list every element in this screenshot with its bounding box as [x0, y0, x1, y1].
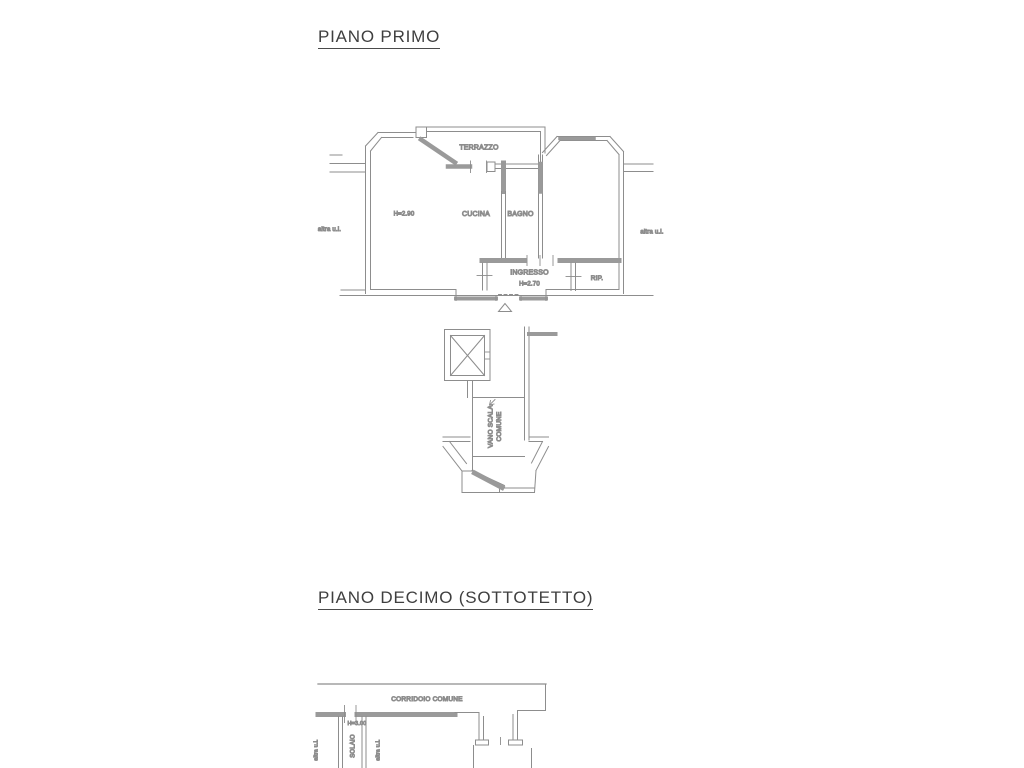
plan1-ingresso-left-wall — [477, 263, 492, 290]
plan1-kitchen-top-wall — [448, 161, 541, 192]
stair-flight — [475, 473, 503, 488]
label-ingresso: INGRESSO — [510, 270, 549, 277]
entry-triangle-icon — [499, 304, 512, 312]
label-altra-ui-left: altra u.i. — [318, 227, 341, 233]
plan1-cucina-bagno-wall — [502, 192, 506, 259]
stair-left-flare — [443, 437, 505, 493]
plan1-diagonal-wall — [416, 127, 455, 163]
label-vano-scala-comune: COMUNE — [496, 411, 503, 442]
plan1-rip-wall — [566, 263, 581, 291]
plan2-attic-floor: CORRIDOIO COMUNE H=3.00 SOLAIO altra u.i… — [314, 684, 547, 768]
plan1-bagno-right-wall — [539, 155, 543, 258]
label-plan2-altra-ui-right: altra u.i. — [376, 739, 382, 761]
plan2-doorway — [476, 684, 546, 745]
plan1-right-wall — [619, 152, 653, 294]
floorplan-page: PIANO PRIMO PIANO DECIMO (SOTTOTETTO) — [0, 0, 1024, 768]
label-plan2-altra-ui-left: altra u.i. — [314, 739, 320, 761]
stairwell-block: VANO SCALA COMUNE — [443, 327, 556, 493]
plan1-ingresso-top-wall — [482, 256, 619, 266]
label-solaio-height: H=3.00 — [347, 721, 366, 727]
stair-right-flare — [500, 437, 549, 493]
plan2-lower-room-walls — [474, 746, 532, 768]
label-bagno: BAGNO — [507, 211, 534, 218]
plan1-bottom-wall — [340, 290, 653, 312]
label-altra-ui-right: altra u.i. — [640, 230, 663, 236]
elevator-icon — [445, 330, 491, 381]
stair-arrow-icon — [490, 400, 496, 406]
label-solaio: SOLAIO — [351, 734, 357, 758]
plan1-left-party-wall — [330, 155, 366, 172]
label-cucina: CUCINA — [462, 211, 490, 218]
floorplan-drawing: TERRAZZO H=2.90 CUCINA BAGNO INGRESSO H=… — [0, 0, 1024, 768]
label-vano-scala: VANO SCALA — [488, 405, 495, 449]
label-room-height: H=2.90 — [394, 212, 415, 218]
plan1-first-floor: TERRAZZO H=2.90 CUCINA BAGNO INGRESSO H=… — [318, 127, 664, 312]
label-ingresso-height: H=2.70 — [519, 282, 540, 288]
label-corridoio-comune: CORRIDOIO COMUNE — [391, 696, 463, 703]
stair-neck-walls — [468, 381, 473, 398]
label-terrazzo: TERRAZZO — [459, 145, 499, 152]
plan1-bay-room — [543, 137, 624, 156]
label-rip: RIP. — [591, 275, 604, 282]
